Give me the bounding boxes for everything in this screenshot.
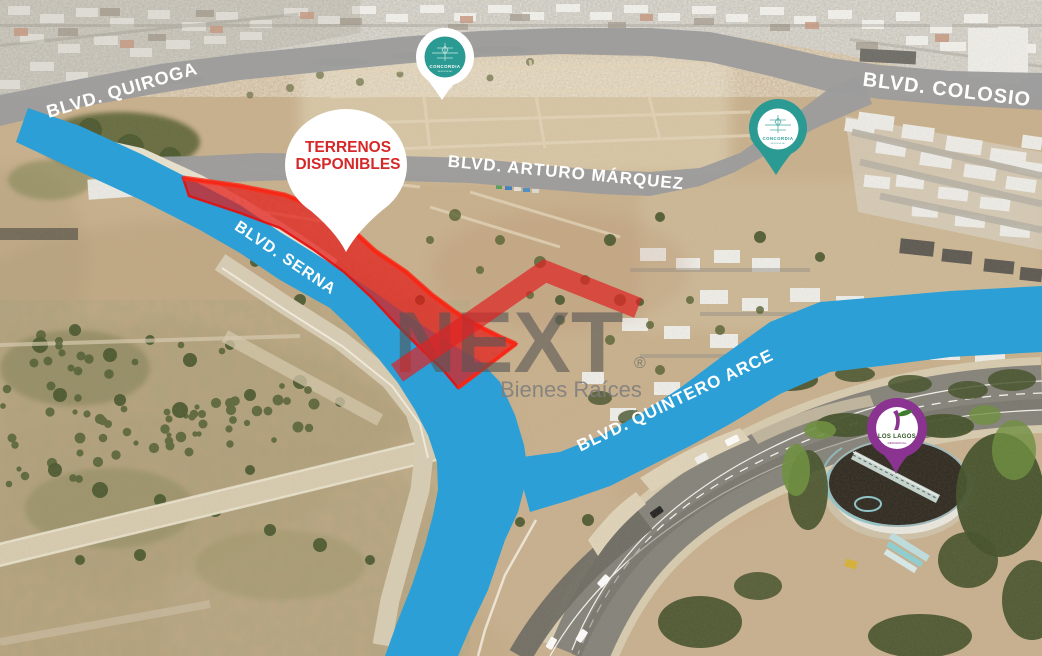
- svg-text:LOS LAGOS: LOS LAGOS: [878, 434, 916, 440]
- svg-text:Bienes Raíces: Bienes Raíces: [500, 377, 642, 402]
- svg-text:®: ®: [634, 355, 646, 372]
- svg-text:RESIDENCIAL: RESIDENCIAL: [438, 70, 453, 73]
- svg-text:DISPONIBLES: DISPONIBLES: [295, 156, 400, 173]
- svg-text:TERRENOS: TERRENOS: [305, 139, 391, 156]
- svg-text:RESIDENCIAL: RESIDENCIAL: [888, 441, 907, 445]
- svg-text:CONCORDIA: CONCORDIA: [763, 136, 794, 141]
- svg-text:RESIDENCIAL: RESIDENCIAL: [771, 142, 786, 145]
- svg-text:CONCORDIA: CONCORDIA: [430, 64, 461, 69]
